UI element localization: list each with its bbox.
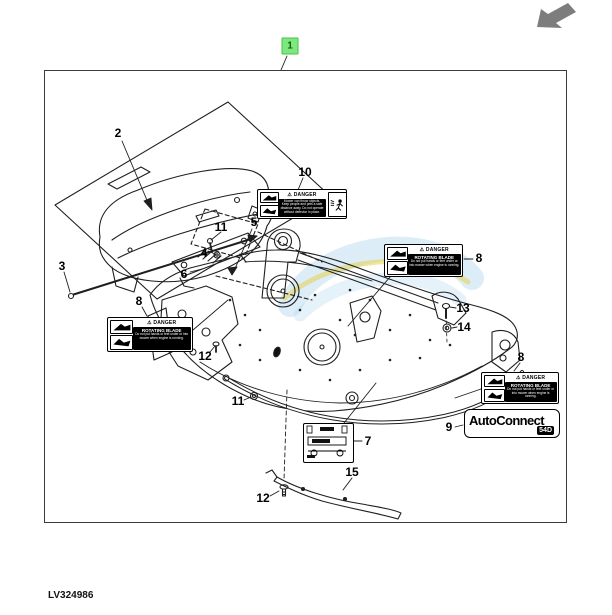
callout-14[interactable]: 14 — [457, 320, 470, 334]
callout-15[interactable]: 15 — [345, 465, 358, 479]
callout-12[interactable]: 12 — [198, 349, 211, 363]
diagram-part-code: LV324986 — [48, 590, 93, 601]
callout-badge-1[interactable]: 1 — [282, 38, 299, 55]
parts-diagram-page: { "footer": { "part_code": "LV324986" },… — [0, 0, 612, 615]
callout-layer: 123456788891011111212131415 — [0, 0, 612, 615]
callout-3[interactable]: 3 — [59, 259, 66, 273]
callout-12[interactable]: 12 — [256, 491, 269, 505]
callout-10[interactable]: 10 — [298, 165, 311, 179]
callout-6[interactable]: 6 — [181, 267, 188, 281]
callout-11[interactable]: 11 — [215, 220, 228, 234]
callout-7[interactable]: 7 — [365, 434, 372, 448]
callout-11[interactable]: 11 — [232, 394, 245, 408]
callout-8[interactable]: 8 — [518, 350, 525, 364]
callout-9[interactable]: 9 — [446, 420, 453, 434]
callout-13[interactable]: 13 — [456, 301, 469, 315]
callout-8[interactable]: 8 — [476, 251, 483, 265]
callout-2[interactable]: 2 — [115, 126, 122, 140]
callout-8[interactable]: 8 — [136, 294, 143, 308]
callout-4[interactable]: 4 — [201, 246, 208, 260]
callout-5[interactable]: 5 — [251, 215, 258, 229]
